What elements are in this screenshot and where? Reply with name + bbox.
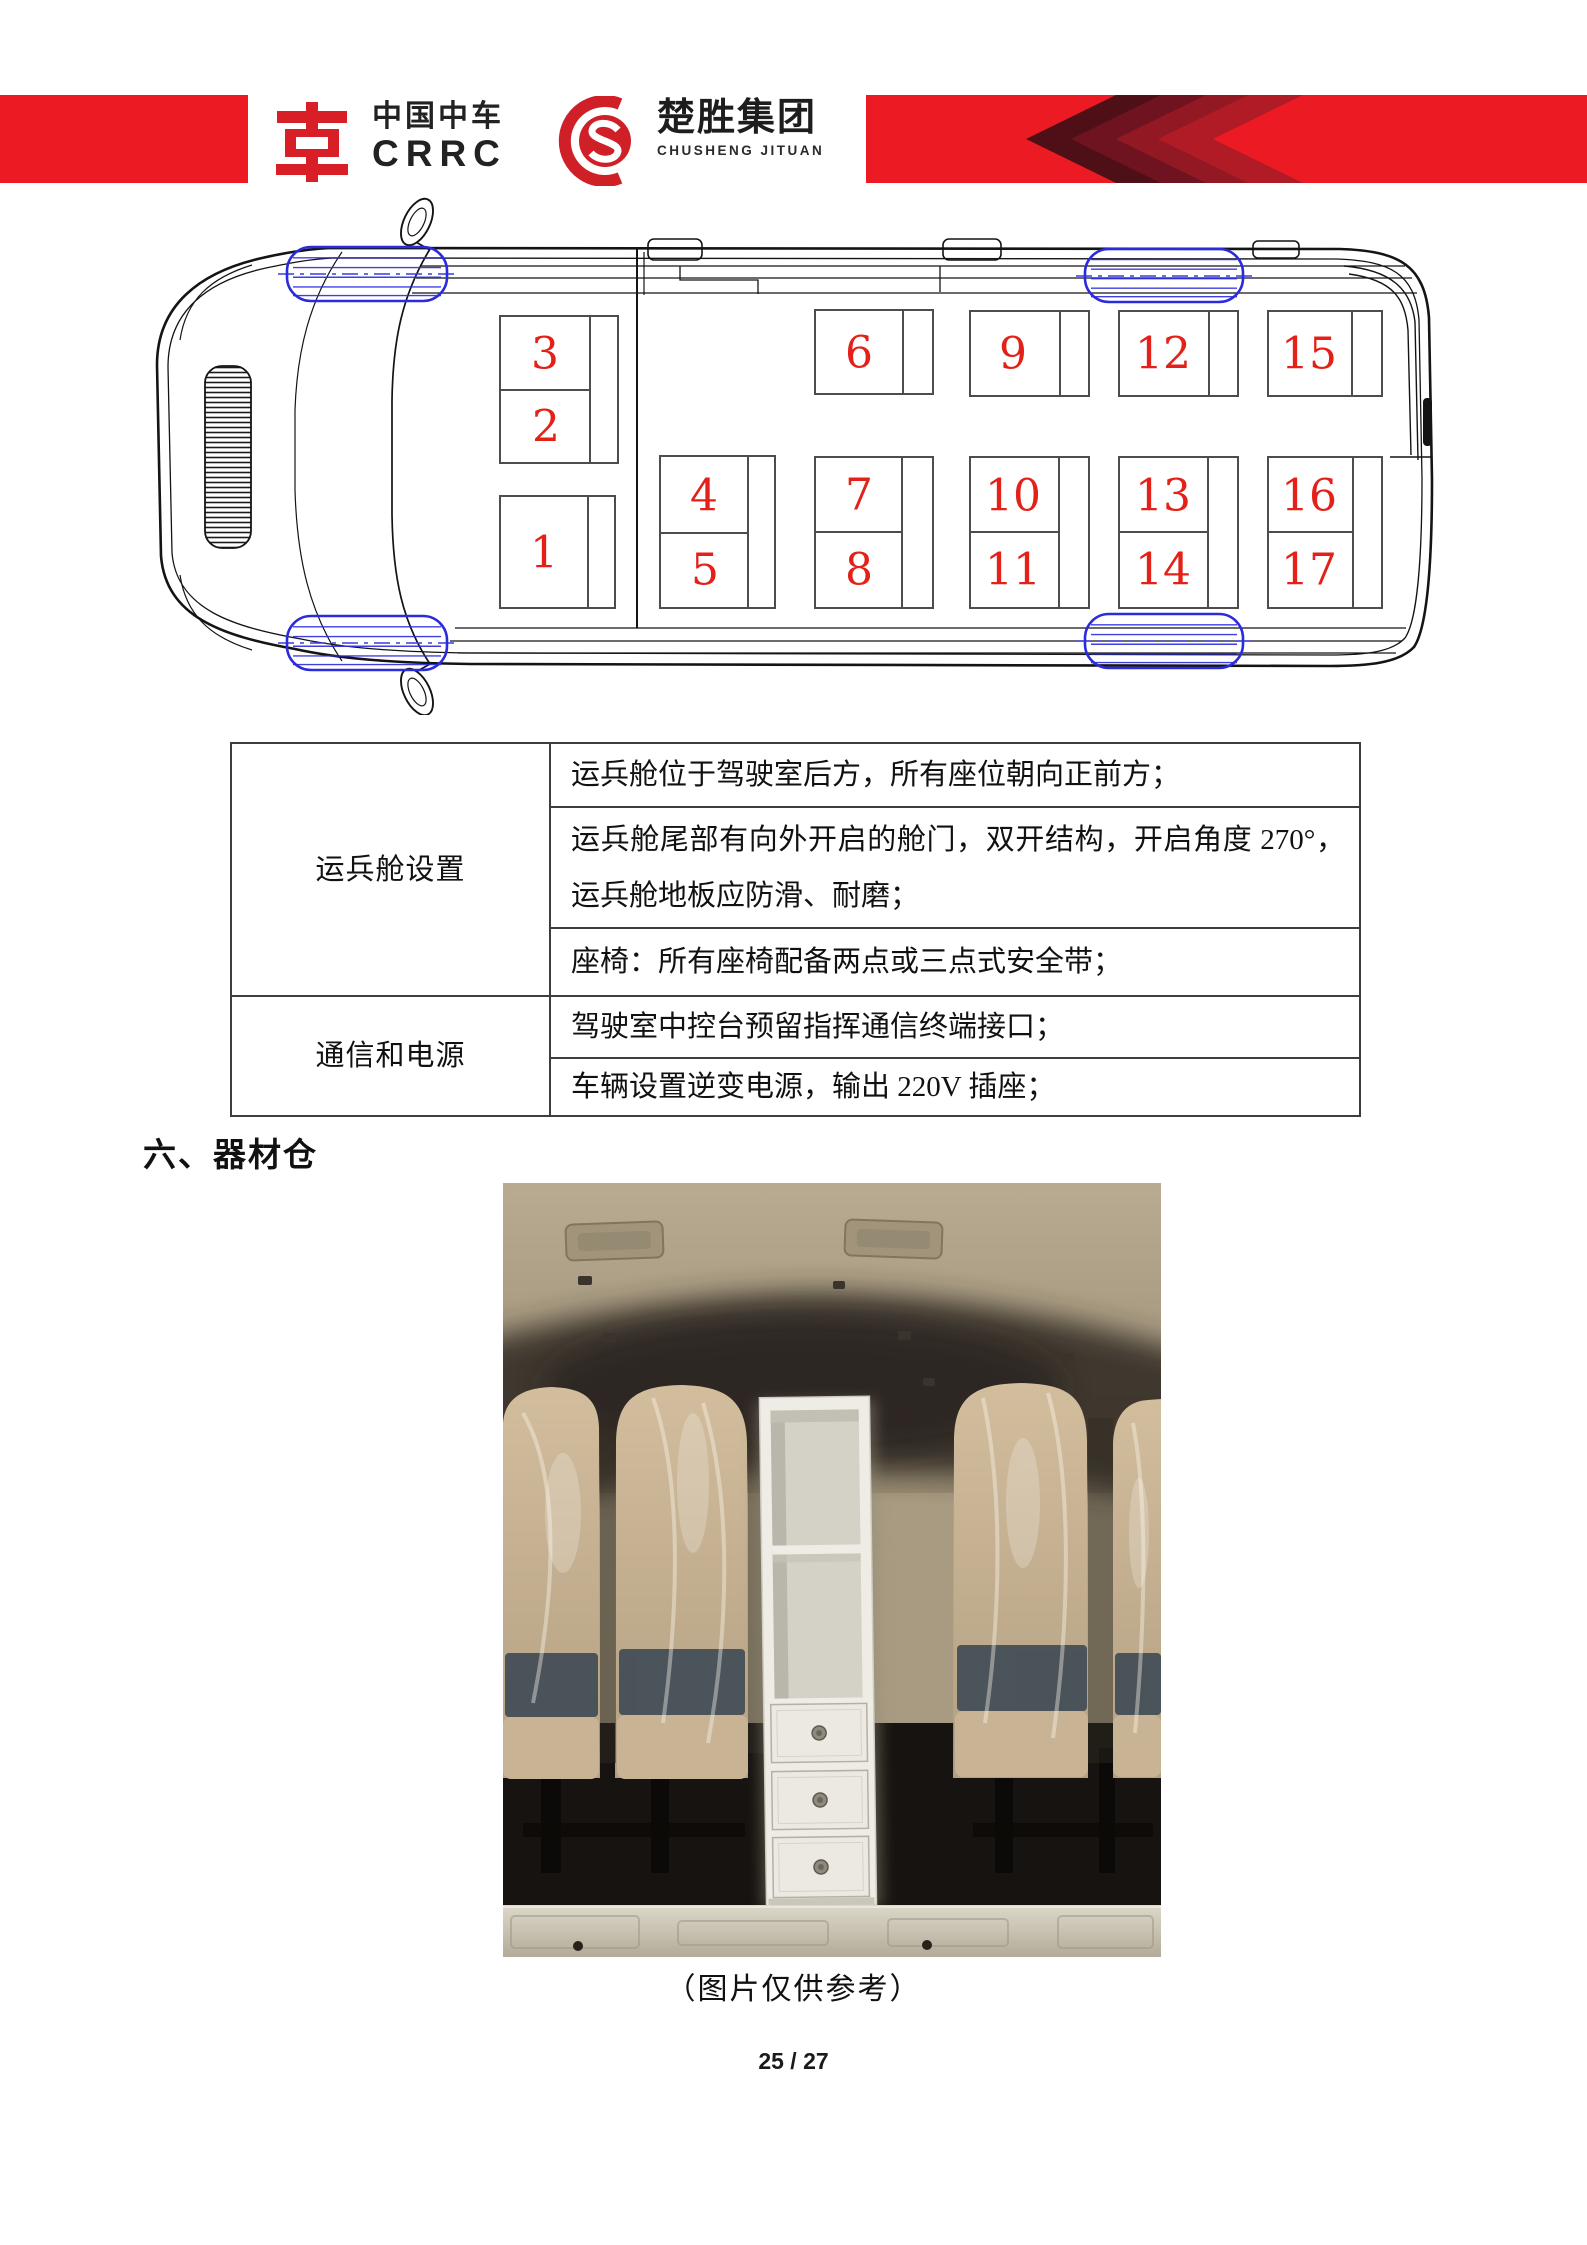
table-cell-comms-port: 驾驶室中控台预留指挥通信终端接口； bbox=[550, 996, 1360, 1058]
table-label-troop-cabin: 运兵舱设置 bbox=[231, 743, 550, 996]
van-seat-diagram: 3214567891011121314151617 bbox=[140, 195, 1460, 715]
seat-block: 15 bbox=[1268, 311, 1382, 396]
spec-table: 运兵舱设置 运兵舱位于驾驶室后方，所有座位朝向正前方； 运兵舱尾部有向外开启的舱… bbox=[230, 742, 1361, 1117]
crrc-name-cn: 中国中车 bbox=[372, 102, 507, 132]
seat-number-7: 7 bbox=[845, 470, 873, 521]
chusheng-logo-text: 楚胜集团 CHUSHENG JITUAN bbox=[657, 99, 824, 158]
seat-number-12: 12 bbox=[1135, 329, 1191, 380]
table-cell-inverter: 车辆设置逆变电源，输出 220V 插座； bbox=[550, 1058, 1360, 1116]
storage-cabinet bbox=[755, 1396, 882, 1908]
van-body-outline bbox=[157, 239, 1432, 666]
seat-block: 1011 bbox=[970, 457, 1089, 608]
seat-block: 1 bbox=[500, 496, 615, 608]
crrc-logo-text: 中国中车 CRRC bbox=[372, 102, 507, 172]
chevron-arrows-icon bbox=[866, 95, 1587, 183]
seat-number-11: 11 bbox=[985, 545, 1041, 596]
van-top-view: 3214567891011121314151617 bbox=[140, 195, 1460, 715]
section-heading: 六、器材仓 bbox=[143, 1128, 318, 1176]
seat-block: 1314 bbox=[1119, 457, 1238, 608]
seat-number-1: 1 bbox=[530, 528, 558, 579]
seat-number-15: 15 bbox=[1281, 329, 1337, 380]
seat-number-9: 9 bbox=[999, 329, 1027, 380]
crrc-logo-icon bbox=[268, 100, 356, 184]
header-red-bar-right bbox=[866, 95, 1587, 183]
table-cell-seatbelts: 座椅：所有座椅配备两点或三点式安全带； bbox=[550, 928, 1360, 996]
seat-number-17: 17 bbox=[1281, 545, 1337, 596]
chusheng-logo-icon bbox=[556, 96, 648, 186]
header-red-bar-left bbox=[0, 95, 248, 183]
chusheng-name-cn: 楚胜集团 bbox=[657, 99, 824, 137]
seat-number-14: 14 bbox=[1135, 545, 1191, 596]
crrc-name-en: CRRC bbox=[372, 135, 507, 172]
equipment-bay-photo bbox=[503, 1183, 1161, 1957]
seat-block: 9 bbox=[970, 311, 1089, 396]
seat-number-13: 13 bbox=[1135, 471, 1191, 522]
seat-block: 1617 bbox=[1268, 457, 1382, 608]
seat-block: 6 bbox=[815, 310, 933, 394]
seat-number-10: 10 bbox=[985, 471, 1041, 522]
seat-block: 45 bbox=[660, 456, 775, 608]
seat-number-4: 4 bbox=[690, 471, 718, 522]
rear-door-latch bbox=[1423, 398, 1432, 446]
side-mirror-top-icon bbox=[394, 195, 439, 250]
seat-block: 12 bbox=[1119, 311, 1238, 396]
table-cell-rear-doors: 运兵舱尾部有向外开启的舱门，双开结构，开启角度 270°，运兵舱地板应防滑、耐磨… bbox=[550, 807, 1360, 928]
seat-number-8: 8 bbox=[845, 545, 873, 596]
chusheng-name-en: CHUSHENG JITUAN bbox=[657, 144, 824, 158]
seat-block: 78 bbox=[815, 457, 933, 608]
van-interior-illustration bbox=[503, 1183, 1161, 1957]
tailgate-sill bbox=[503, 1905, 1161, 1957]
photo-caption: （图片仅供参考） bbox=[0, 1964, 1587, 2008]
table-label-comms-power: 通信和电源 bbox=[231, 996, 550, 1116]
seat-number-3: 3 bbox=[531, 329, 559, 380]
cabinet-drawers bbox=[771, 1703, 870, 1897]
page-number: 25 / 27 bbox=[0, 2048, 1587, 2075]
seat-number-16: 16 bbox=[1281, 471, 1337, 522]
seat-number-5: 5 bbox=[691, 545, 719, 596]
front-grille bbox=[205, 366, 251, 548]
side-mirror-bottom-icon bbox=[394, 664, 439, 715]
seat-number-6: 6 bbox=[845, 328, 873, 379]
seat-number-2: 2 bbox=[532, 402, 560, 453]
table-cell-seating-orientation: 运兵舱位于驾驶室后方，所有座位朝向正前方； bbox=[550, 743, 1360, 807]
seat-block: 32 bbox=[500, 316, 618, 463]
